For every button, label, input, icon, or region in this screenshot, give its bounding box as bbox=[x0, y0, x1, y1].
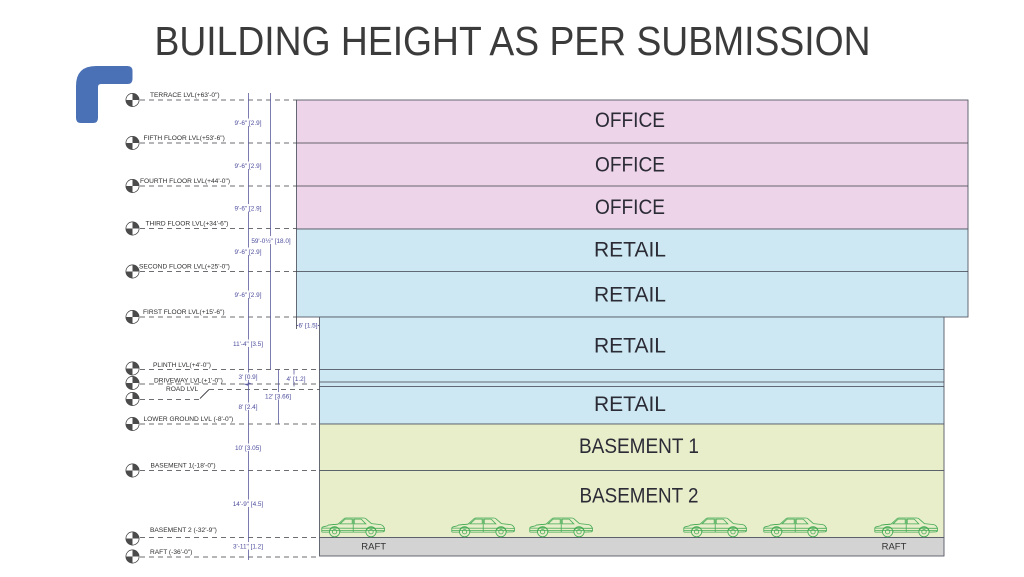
svg-text:THIRD FLOOR LVL(+34'-6"): THIRD FLOOR LVL(+34'-6") bbox=[146, 221, 229, 228]
svg-text:OFFICE: OFFICE bbox=[595, 109, 665, 132]
svg-text:RETAIL: RETAIL bbox=[594, 239, 666, 262]
svg-text:OFFICE: OFFICE bbox=[595, 154, 665, 177]
svg-text:FIFTH FLOOR LVL(+53'-6"): FIFTH FLOOR LVL(+53'-6") bbox=[144, 135, 225, 142]
svg-text:FIRST FLOOR LVL(+15'-6"): FIRST FLOOR LVL(+15'-6") bbox=[143, 309, 225, 316]
svg-text:OFFICE: OFFICE bbox=[595, 196, 665, 219]
svg-text:11'-4" [3.5]: 11'-4" [3.5] bbox=[233, 341, 263, 348]
svg-text:BASEMENT 2: BASEMENT 2 bbox=[580, 485, 699, 508]
svg-text:BASEMENT 1: BASEMENT 1 bbox=[579, 435, 699, 458]
svg-text:4' [1.2]: 4' [1.2] bbox=[287, 376, 306, 383]
svg-text:BUILDING HEIGHT AS PER SUBMISS: BUILDING HEIGHT AS PER SUBMISSION bbox=[155, 18, 871, 64]
svg-text:LOWER GROUND LVL (-8'-0"): LOWER GROUND LVL (-8'-0") bbox=[144, 416, 234, 423]
svg-text:BASEMENT 2 (-32'-9"): BASEMENT 2 (-32'-9") bbox=[150, 527, 217, 534]
svg-text:PLINTH LVL(+4'-0"): PLINTH LVL(+4'-0") bbox=[153, 362, 211, 369]
svg-text:RAFT (-36'-0"): RAFT (-36'-0") bbox=[150, 549, 192, 556]
svg-text:DRIVEWAY LVL(+1'-0"): DRIVEWAY LVL(+1'-0") bbox=[154, 378, 223, 385]
svg-text:RETAIL: RETAIL bbox=[594, 284, 666, 307]
svg-text:RETAIL: RETAIL bbox=[594, 335, 666, 358]
svg-text:BASEMENT 1(-18'-0"): BASEMENT 1(-18'-0") bbox=[151, 463, 216, 470]
svg-text:8' [2.4]: 8' [2.4] bbox=[239, 404, 258, 411]
svg-text:6' [1.5]: 6' [1.5] bbox=[299, 323, 318, 330]
svg-text:TERRACE LVL(+63'-0"): TERRACE LVL(+63'-0") bbox=[150, 92, 220, 99]
svg-text:9'-6" [2.9]: 9'-6" [2.9] bbox=[235, 163, 262, 170]
svg-text:12' [3.66]: 12' [3.66] bbox=[265, 393, 291, 400]
svg-text:59'-0½" [18.0]: 59'-0½" [18.0] bbox=[251, 237, 291, 245]
svg-text:9'-6" [2.9]: 9'-6" [2.9] bbox=[235, 249, 262, 256]
svg-text:9'-6" [2.9]: 9'-6" [2.9] bbox=[235, 292, 262, 299]
svg-text:RAFT: RAFT bbox=[361, 542, 386, 553]
svg-text:9'-6" [2.9]: 9'-6" [2.9] bbox=[235, 120, 262, 127]
svg-text:3' [0.9]: 3' [0.9] bbox=[239, 374, 258, 381]
svg-text:3'-11" [1.2]: 3'-11" [1.2] bbox=[233, 543, 263, 550]
svg-text:RAFT: RAFT bbox=[882, 542, 907, 553]
svg-text:RETAIL: RETAIL bbox=[594, 393, 666, 416]
svg-text:FOURTH FLOOR LVL(+44'-0"): FOURTH FLOOR LVL(+44'-0") bbox=[140, 178, 230, 185]
svg-text:14'-9" [4.5]: 14'-9" [4.5] bbox=[233, 501, 264, 508]
svg-text:9'-6" [2.9]: 9'-6" [2.9] bbox=[235, 205, 262, 212]
svg-text:10' [3.05]: 10' [3.05] bbox=[235, 445, 261, 452]
svg-text:ROAD LVL: ROAD LVL bbox=[166, 386, 198, 393]
svg-text:SECOND FLOOR LVL(+25'-0"): SECOND FLOOR LVL(+25'-0") bbox=[139, 264, 230, 271]
